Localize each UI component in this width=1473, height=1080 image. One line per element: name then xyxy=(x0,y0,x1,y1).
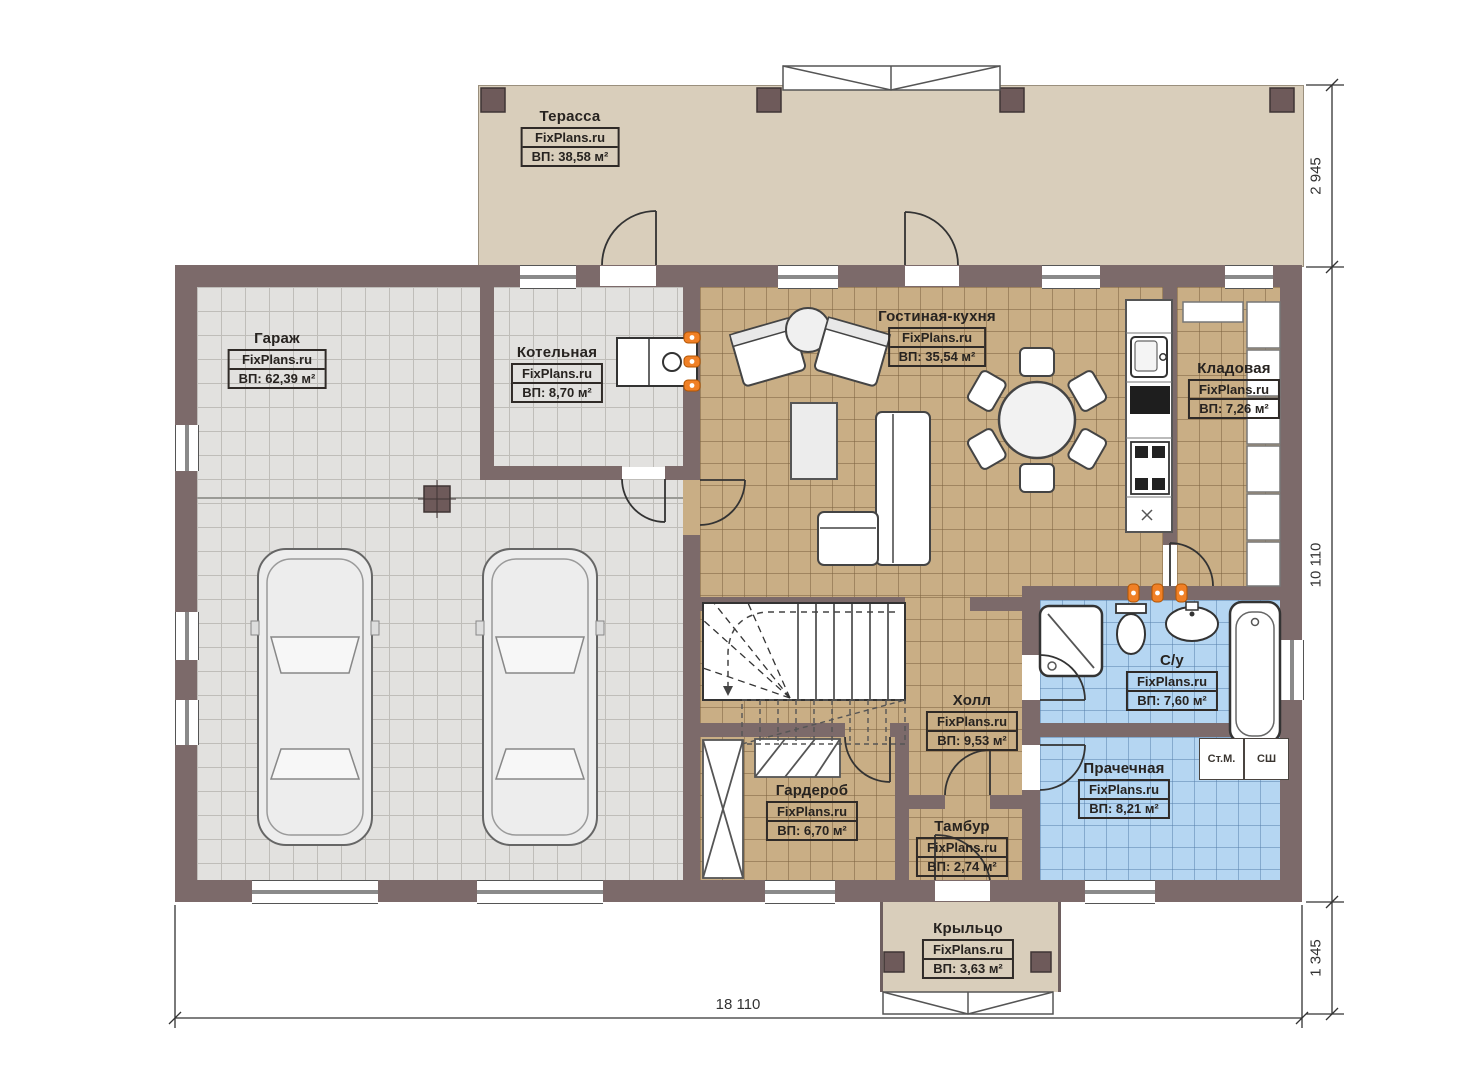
radiator-group-boiler xyxy=(684,332,700,391)
room-site: FixPlans.ru xyxy=(924,941,1012,958)
drying-cabinet: СШ xyxy=(1244,738,1289,780)
label-laundry: Прачечная FixPlans.ru ВП: 8,21 м² xyxy=(1078,760,1170,819)
door-storage xyxy=(1170,543,1213,586)
room-title-bathroom: С/у xyxy=(1126,652,1218,669)
dining-set xyxy=(966,348,1108,492)
room-area: ВП: 7,60 м² xyxy=(1128,690,1216,709)
room-site: FixPlans.ru xyxy=(768,803,856,820)
door-garage-living xyxy=(700,480,745,525)
terrace-steps xyxy=(783,66,1000,90)
room-site: FixPlans.ru xyxy=(928,713,1016,730)
label-hall: Холл FixPlans.ru ВП: 9,53 м² xyxy=(926,692,1018,751)
dim-house-depth: 10 110 xyxy=(1308,543,1325,588)
garage-column xyxy=(418,480,456,518)
room-area: ВП: 9,53 м² xyxy=(928,730,1016,749)
kitchen-stove xyxy=(1131,442,1169,494)
room-site: FixPlans.ru xyxy=(1128,673,1216,690)
room-title-vestibule: Тамбур xyxy=(916,818,1008,835)
room-area: ВП: 3,63 м² xyxy=(924,958,1012,977)
washing-machine-label: Ст.М. xyxy=(1208,753,1236,765)
room-title-porch: Крыльцо xyxy=(922,920,1014,937)
room-title-hall: Холл xyxy=(926,692,1018,709)
label-boiler: Котельная FixPlans.ru ВП: 8,70 м² xyxy=(511,344,603,403)
dim-porch-depth: 1 345 xyxy=(1308,939,1325,977)
room-area: ВП: 6,70 м² xyxy=(768,820,856,839)
room-title-garage: Гараж xyxy=(228,330,327,347)
toilet xyxy=(1116,604,1146,654)
room-title-boiler: Котельная xyxy=(511,344,603,361)
label-storage: Кладовая FixPlans.ru ВП: 7,26 м² xyxy=(1188,360,1280,419)
room-site: FixPlans.ru xyxy=(918,839,1006,856)
car-2 xyxy=(476,549,604,845)
plan-graphics xyxy=(0,0,1473,1080)
dim-total-width: 18 110 xyxy=(716,996,761,1013)
room-site: FixPlans.ru xyxy=(230,351,325,368)
bathtub xyxy=(1230,602,1280,742)
room-area: ВП: 38,58 м² xyxy=(523,146,618,165)
room-title-storage: Кладовая xyxy=(1188,360,1280,377)
room-title-laundry: Прачечная xyxy=(1078,760,1170,777)
room-site: FixPlans.ru xyxy=(523,129,618,146)
dim-terrace-depth: 2 945 xyxy=(1308,157,1325,195)
kitchen-sink xyxy=(1131,337,1167,377)
room-area: ВП: 8,70 м² xyxy=(513,382,601,401)
radiator-group-bathroom xyxy=(1128,584,1187,602)
label-bathroom: С/у FixPlans.ru ВП: 7,60 м² xyxy=(1126,652,1218,711)
label-wardrobe: Гардероб FixPlans.ru ВП: 6,70 м² xyxy=(766,782,858,841)
car-1 xyxy=(251,549,379,845)
room-site: FixPlans.ru xyxy=(513,365,601,382)
label-vestibule: Тамбур FixPlans.ru ВП: 2,74 м² xyxy=(916,818,1008,877)
shower xyxy=(1040,606,1102,676)
door-living-terrace xyxy=(905,212,958,265)
kitchen-appliance-dark xyxy=(1130,386,1170,414)
room-area: ВП: 2,74 м² xyxy=(918,856,1006,875)
room-site: FixPlans.ru xyxy=(890,329,985,346)
floor-plan: Терасса FixPlans.ru ВП: 38,58 м² Гараж F… xyxy=(0,0,1473,1080)
kitchen-counter xyxy=(1126,300,1172,532)
label-terrace: Терасса FixPlans.ru ВП: 38,58 м² xyxy=(521,108,620,167)
door-boiler-terrace xyxy=(602,211,656,265)
room-area: ВП: 7,26 м² xyxy=(1190,398,1278,417)
label-garage: Гараж FixPlans.ru ВП: 62,39 м² xyxy=(228,330,327,389)
drying-cabinet-label: СШ xyxy=(1257,753,1276,765)
room-area: ВП: 35,54 м² xyxy=(890,346,985,365)
room-site: FixPlans.ru xyxy=(1190,381,1278,398)
washing-machine: Ст.М. xyxy=(1199,738,1244,780)
label-living: Гостиная-кухня FixPlans.ru ВП: 35,54 м² xyxy=(878,308,996,367)
coffee-table xyxy=(791,403,837,479)
wardrobe-cabinet-tall xyxy=(703,740,743,878)
label-porch: Крыльцо FixPlans.ru ВП: 3,63 м² xyxy=(922,920,1014,979)
staircase xyxy=(703,603,905,744)
door-vestibule-hall xyxy=(945,750,990,795)
room-area: ВП: 62,39 м² xyxy=(230,368,325,387)
room-title-wardrobe: Гардероб xyxy=(766,782,858,799)
porch-steps xyxy=(883,992,1053,1014)
door-boiler-garage xyxy=(622,479,665,522)
bathroom-sink xyxy=(1166,602,1218,641)
room-area: ВП: 8,21 м² xyxy=(1080,798,1168,817)
room-title-terrace: Терасса xyxy=(521,108,620,125)
storage-shelves xyxy=(1183,302,1280,586)
room-title-living: Гостиная-кухня xyxy=(878,308,996,325)
room-site: FixPlans.ru xyxy=(1080,781,1168,798)
